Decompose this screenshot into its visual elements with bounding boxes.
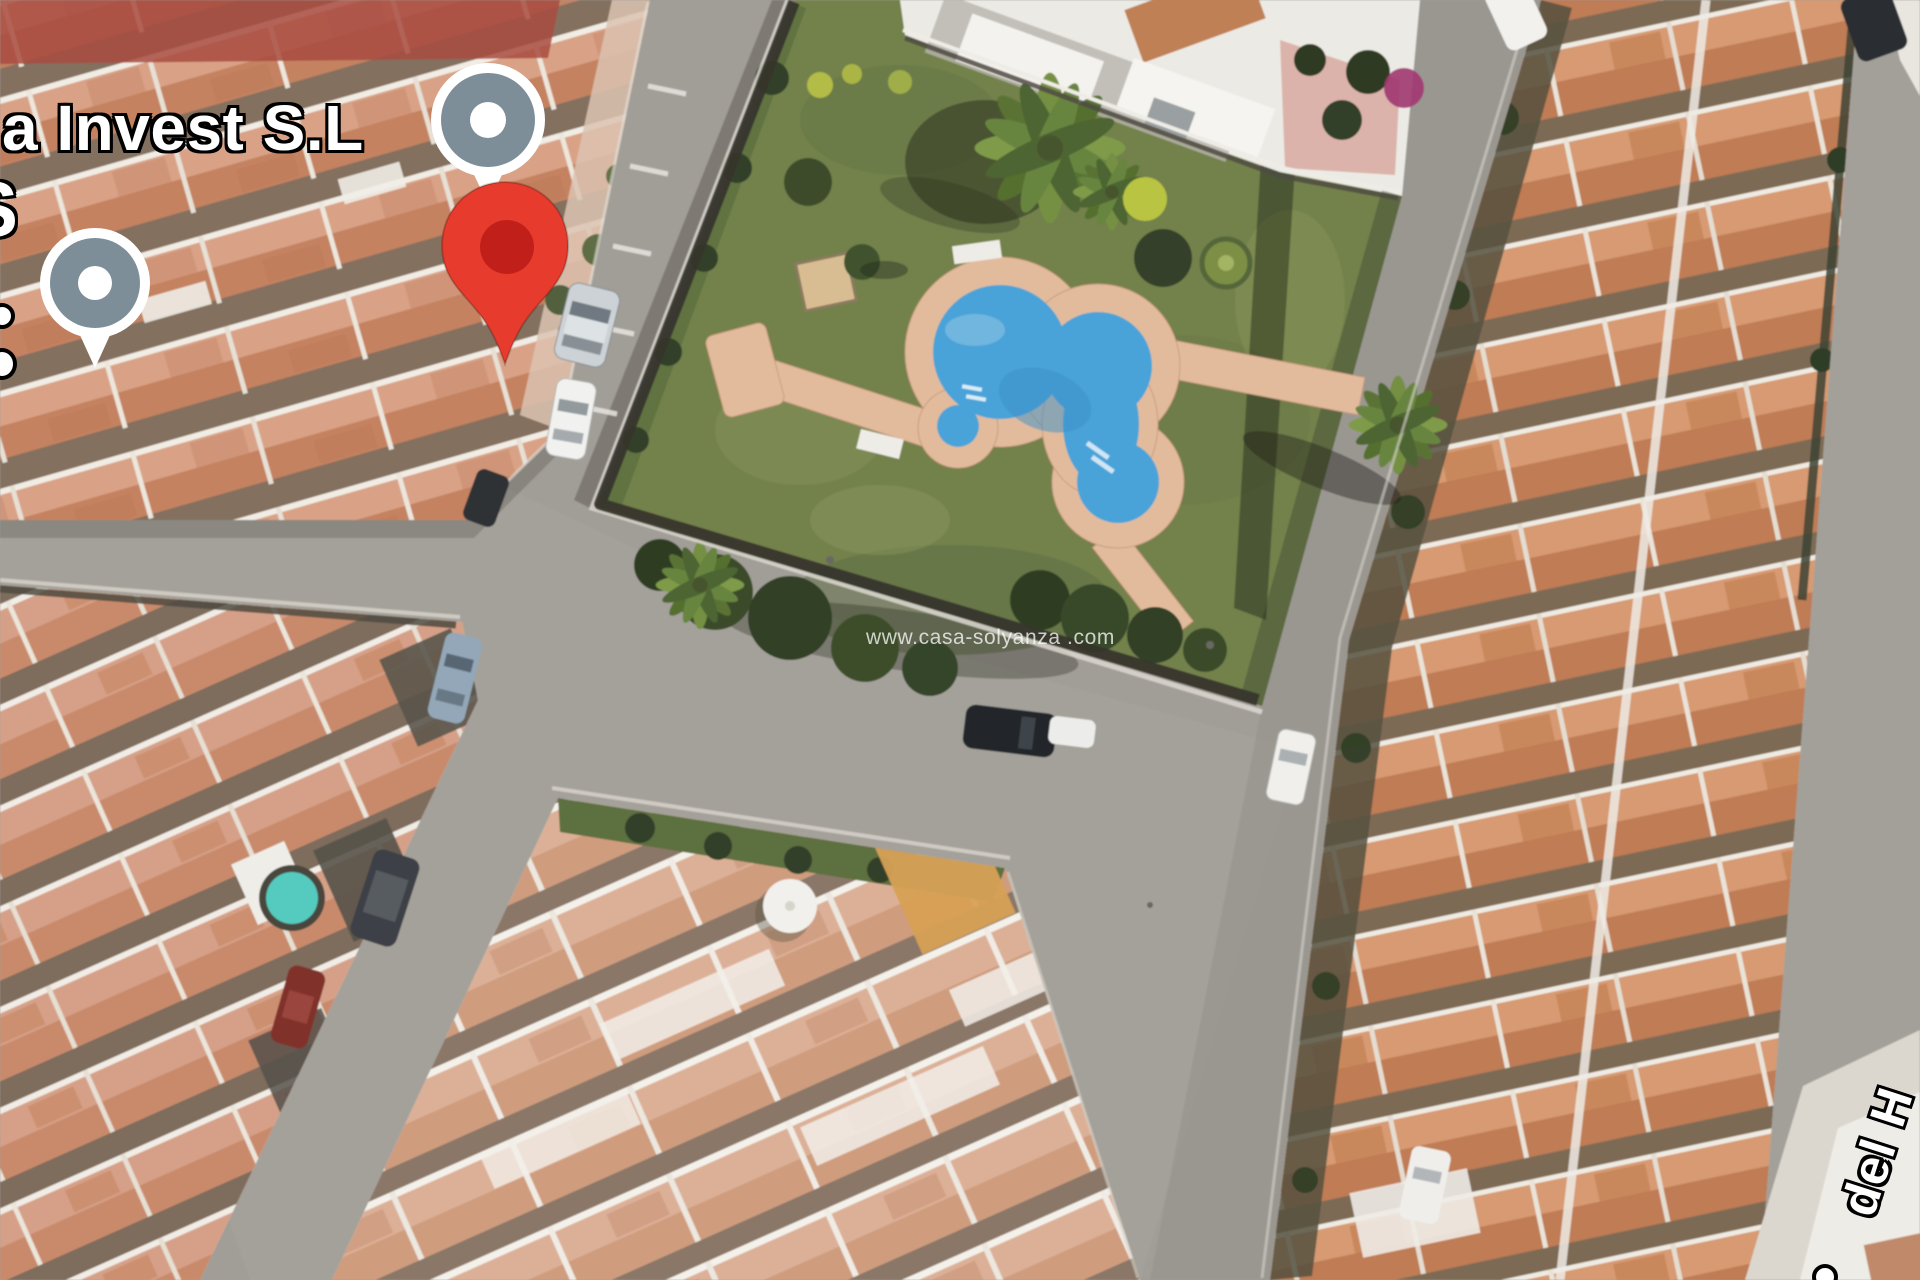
- watermark: www.casa-solyanza .com: [866, 626, 1115, 650]
- poi-label-invest[interactable]: a Invest S.L: [2, 96, 364, 160]
- poi-label-partial-left: S: [0, 170, 19, 248]
- parked-car: [1047, 715, 1096, 748]
- round-pool: [266, 872, 318, 924]
- bougainvillea-tree: [1384, 68, 1424, 108]
- map-viewport[interactable]: a Invest S.L S del H www.casa-solyanza .…: [0, 0, 1920, 1280]
